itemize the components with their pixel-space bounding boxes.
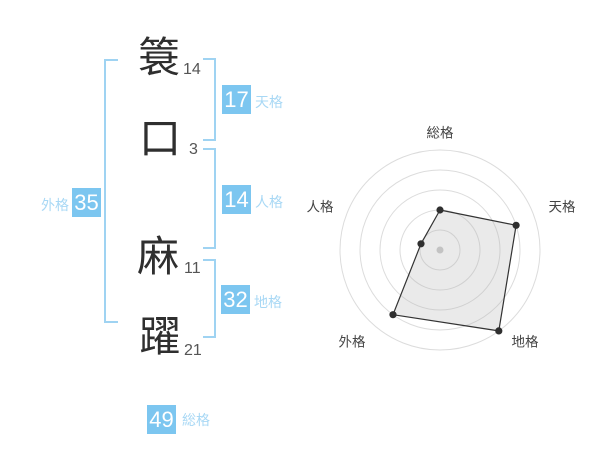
stroke-count-1: 14 [183, 62, 201, 78]
gaikaku-bracket [104, 59, 118, 323]
name-character-1: 簑 [137, 36, 181, 80]
jinkaku-bracket [203, 148, 216, 249]
chikaku-bracket [203, 259, 216, 338]
radar-axis-label-4: 外格 [339, 335, 366, 350]
tenkaku-value-badge: 17 [222, 85, 251, 114]
gaikaku-label: 外格 [41, 198, 69, 213]
name-character-4: 躍 [138, 315, 182, 359]
radar-polygon [393, 210, 516, 331]
tenkaku-bracket [203, 58, 216, 141]
jinkaku-value-badge: 14 [222, 185, 251, 214]
tenkaku-label: 天格 [255, 95, 283, 110]
chikaku-value-badge: 32 [221, 285, 250, 314]
stroke-count-2: 3 [189, 142, 198, 158]
radar-point-5 [417, 240, 424, 247]
soukaku-value-badge: 49 [147, 405, 176, 434]
chikaku-label: 地格 [254, 295, 282, 310]
soukaku-label: 総格 [182, 413, 210, 428]
stroke-count-3: 11 [184, 261, 201, 277]
radar-axis-label-2: 天格 [549, 200, 577, 215]
radar-point-1 [436, 206, 443, 213]
radar-axis-label-5: 人格 [307, 200, 334, 215]
jinkaku-label: 人格 [255, 195, 283, 210]
name-analysis-panel: 簑 14 口 3 麻 11 躍 21 17 天格 14 人格 32 地格 外格 … [0, 0, 600, 470]
name-character-3: 麻 [136, 235, 180, 279]
stroke-count-4: 21 [184, 343, 202, 359]
radar-chart: 総格天格地格外格人格 [300, 100, 600, 380]
radar-point-2 [513, 222, 520, 229]
gaikaku-value-badge: 35 [72, 188, 101, 217]
radar-point-3 [495, 327, 502, 334]
radar-axis-label-1: 総格 [427, 126, 454, 141]
radar-point-4 [389, 311, 396, 318]
radar-axis-label-3: 地格 [512, 335, 540, 350]
name-character-2: 口 [138, 117, 182, 161]
